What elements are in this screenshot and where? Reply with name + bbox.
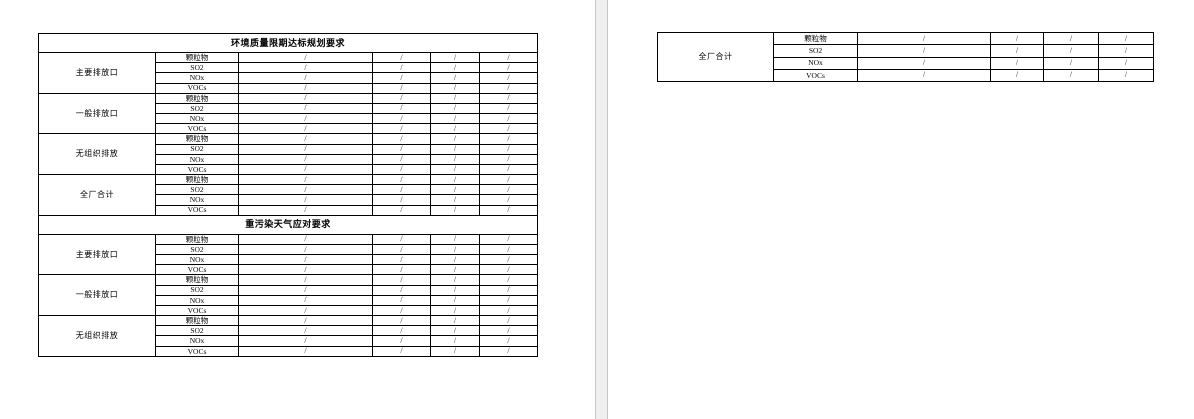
pollutant-label: NOx xyxy=(156,114,239,124)
pollutant-label: VOCs xyxy=(156,205,239,215)
value-cell: / xyxy=(480,83,538,93)
value-cell: / xyxy=(239,295,373,305)
table-row: 全厂合计颗粒物//// xyxy=(658,33,1154,45)
value-cell: / xyxy=(1099,45,1154,57)
group-label: 主要排放口 xyxy=(39,53,156,94)
pollutant-label: VOCs xyxy=(156,346,239,356)
pollutant-label: 颗粒物 xyxy=(156,134,239,144)
value-cell: / xyxy=(431,134,480,144)
value-cell: / xyxy=(991,69,1044,81)
value-cell: / xyxy=(239,185,373,195)
value-cell: / xyxy=(991,33,1044,45)
value-cell: / xyxy=(480,93,538,103)
value-cell: / xyxy=(373,336,431,346)
pollutant-label: VOCs xyxy=(156,124,239,134)
value-cell: / xyxy=(480,275,538,285)
page-2: 全厂合计颗粒物////SO2////NOx////VOCs//// xyxy=(608,0,1194,419)
value-cell: / xyxy=(431,305,480,315)
page-1: 环境质量限期达标规划要求主要排放口颗粒物////SO2////NOx////VO… xyxy=(0,0,595,419)
value-cell: / xyxy=(373,164,431,174)
pollutant-label: NOx xyxy=(156,336,239,346)
value-cell: / xyxy=(239,114,373,124)
value-cell: / xyxy=(431,234,480,244)
page-divider xyxy=(595,0,608,419)
value-cell: / xyxy=(373,175,431,185)
value-cell: / xyxy=(239,53,373,63)
value-cell: / xyxy=(373,346,431,356)
group-label: 全厂合计 xyxy=(39,175,156,216)
value-cell: / xyxy=(373,195,431,205)
table-row: 主要排放口颗粒物//// xyxy=(39,234,538,244)
value-cell: / xyxy=(480,175,538,185)
value-cell: / xyxy=(1099,33,1154,45)
value-cell: / xyxy=(858,33,991,45)
value-cell: / xyxy=(480,195,538,205)
value-cell: / xyxy=(480,346,538,356)
value-cell: / xyxy=(431,195,480,205)
value-cell: / xyxy=(431,175,480,185)
value-cell: / xyxy=(431,103,480,113)
value-cell: / xyxy=(480,255,538,265)
value-cell: / xyxy=(431,144,480,154)
value-cell: / xyxy=(239,285,373,295)
value-cell: / xyxy=(1044,57,1099,69)
group-label: 一般排放口 xyxy=(39,275,156,316)
value-cell: / xyxy=(373,305,431,315)
value-cell: / xyxy=(373,53,431,63)
value-cell: / xyxy=(431,63,480,73)
value-cell: / xyxy=(431,93,480,103)
value-cell: / xyxy=(431,255,480,265)
value-cell: / xyxy=(480,114,538,124)
value-cell: / xyxy=(431,275,480,285)
table-row: 无组织排放颗粒物//// xyxy=(39,316,538,326)
value-cell: / xyxy=(373,265,431,275)
pollutant-label: 颗粒物 xyxy=(156,234,239,244)
value-cell: / xyxy=(239,305,373,315)
value-cell: / xyxy=(480,305,538,315)
pollutant-label: VOCs xyxy=(156,164,239,174)
pollutant-label: 颗粒物 xyxy=(156,53,239,63)
pollutant-label: NOx xyxy=(156,154,239,164)
pollutant-label: NOx xyxy=(156,195,239,205)
value-cell: / xyxy=(431,164,480,174)
value-cell: / xyxy=(431,124,480,134)
value-cell: / xyxy=(373,234,431,244)
value-cell: / xyxy=(239,336,373,346)
table-row: 一般排放口颗粒物//// xyxy=(39,93,538,103)
value-cell: / xyxy=(480,164,538,174)
value-cell: / xyxy=(480,103,538,113)
section-title: 重污染天气应对要求 xyxy=(39,215,538,234)
value-cell: / xyxy=(480,154,538,164)
value-cell: / xyxy=(431,154,480,164)
pollutant-label: SO2 xyxy=(774,45,858,57)
pollutant-label: VOCs xyxy=(156,265,239,275)
value-cell: / xyxy=(373,103,431,113)
value-cell: / xyxy=(239,265,373,275)
value-cell: / xyxy=(1099,57,1154,69)
pollutant-label: 颗粒物 xyxy=(774,33,858,45)
pollutant-label: SO2 xyxy=(156,144,239,154)
value-cell: / xyxy=(480,234,538,244)
value-cell: / xyxy=(239,326,373,336)
group-label: 主要排放口 xyxy=(39,234,156,275)
value-cell: / xyxy=(1044,69,1099,81)
value-cell: / xyxy=(480,326,538,336)
value-cell: / xyxy=(373,244,431,254)
table-row: 全厂合计颗粒物//// xyxy=(39,175,538,185)
value-cell: / xyxy=(373,73,431,83)
value-cell: / xyxy=(373,285,431,295)
value-cell: / xyxy=(239,244,373,254)
page1-table: 环境质量限期达标规划要求主要排放口颗粒物////SO2////NOx////VO… xyxy=(38,33,538,357)
value-cell: / xyxy=(480,144,538,154)
table-row: 主要排放口颗粒物//// xyxy=(39,53,538,63)
value-cell: / xyxy=(480,285,538,295)
pollutant-label: SO2 xyxy=(156,103,239,113)
value-cell: / xyxy=(431,326,480,336)
value-cell: / xyxy=(480,124,538,134)
value-cell: / xyxy=(1099,69,1154,81)
page2-table: 全厂合计颗粒物////SO2////NOx////VOCs//// xyxy=(657,32,1154,82)
value-cell: / xyxy=(431,285,480,295)
value-cell: / xyxy=(239,316,373,326)
value-cell: / xyxy=(373,154,431,164)
pollutant-label: 颗粒物 xyxy=(156,93,239,103)
value-cell: / xyxy=(431,316,480,326)
value-cell: / xyxy=(858,69,991,81)
value-cell: / xyxy=(373,124,431,134)
value-cell: / xyxy=(373,326,431,336)
value-cell: / xyxy=(373,144,431,154)
value-cell: / xyxy=(239,175,373,185)
value-cell: / xyxy=(480,244,538,254)
value-cell: / xyxy=(239,205,373,215)
pollutant-label: VOCs xyxy=(156,83,239,93)
value-cell: / xyxy=(373,255,431,265)
value-cell: / xyxy=(373,185,431,195)
value-cell: / xyxy=(373,114,431,124)
section-title: 环境质量限期达标规划要求 xyxy=(39,34,538,53)
pollutant-label: VOCs xyxy=(156,305,239,315)
value-cell: / xyxy=(239,255,373,265)
value-cell: / xyxy=(1044,45,1099,57)
value-cell: / xyxy=(431,185,480,195)
pollutant-label: NOx xyxy=(156,295,239,305)
pollutant-label: 颗粒物 xyxy=(156,175,239,185)
value-cell: / xyxy=(480,73,538,83)
group-label: 无组织排放 xyxy=(39,316,156,357)
value-cell: / xyxy=(480,316,538,326)
pollutant-label: 颗粒物 xyxy=(156,275,239,285)
value-cell: / xyxy=(431,244,480,254)
table-row: 一般排放口颗粒物//// xyxy=(39,275,538,285)
value-cell: / xyxy=(1044,33,1099,45)
value-cell: / xyxy=(480,295,538,305)
pollutant-label: NOx xyxy=(774,57,858,69)
value-cell: / xyxy=(239,234,373,244)
value-cell: / xyxy=(239,195,373,205)
value-cell: / xyxy=(373,93,431,103)
value-cell: / xyxy=(991,45,1044,57)
pollutant-label: SO2 xyxy=(156,326,239,336)
value-cell: / xyxy=(373,275,431,285)
value-cell: / xyxy=(431,73,480,83)
value-cell: / xyxy=(431,336,480,346)
pollutant-label: 颗粒物 xyxy=(156,316,239,326)
pollutant-label: SO2 xyxy=(156,244,239,254)
value-cell: / xyxy=(480,53,538,63)
value-cell: / xyxy=(239,154,373,164)
value-cell: / xyxy=(239,346,373,356)
value-cell: / xyxy=(431,265,480,275)
value-cell: / xyxy=(480,265,538,275)
value-cell: / xyxy=(431,114,480,124)
value-cell: / xyxy=(239,164,373,174)
value-cell: / xyxy=(239,144,373,154)
value-cell: / xyxy=(991,57,1044,69)
pollutant-label: SO2 xyxy=(156,63,239,73)
value-cell: / xyxy=(239,103,373,113)
pollutant-label: VOCs xyxy=(774,69,858,81)
value-cell: / xyxy=(239,134,373,144)
value-cell: / xyxy=(431,346,480,356)
value-cell: / xyxy=(239,83,373,93)
value-cell: / xyxy=(480,63,538,73)
table-row: 无组织排放颗粒物//// xyxy=(39,134,538,144)
group-label: 无组织排放 xyxy=(39,134,156,175)
pollutant-label: NOx xyxy=(156,73,239,83)
value-cell: / xyxy=(431,205,480,215)
value-cell: / xyxy=(480,185,538,195)
value-cell: / xyxy=(858,45,991,57)
value-cell: / xyxy=(239,124,373,134)
document-canvas: 环境质量限期达标规划要求主要排放口颗粒物////SO2////NOx////VO… xyxy=(0,0,1194,419)
group-label: 一般排放口 xyxy=(39,93,156,134)
value-cell: / xyxy=(431,83,480,93)
value-cell: / xyxy=(373,316,431,326)
value-cell: / xyxy=(373,205,431,215)
value-cell: / xyxy=(239,73,373,83)
pollutant-label: NOx xyxy=(156,255,239,265)
value-cell: / xyxy=(480,336,538,346)
value-cell: / xyxy=(239,63,373,73)
value-cell: / xyxy=(239,275,373,285)
pollutant-label: SO2 xyxy=(156,185,239,195)
value-cell: / xyxy=(480,134,538,144)
value-cell: / xyxy=(373,134,431,144)
value-cell: / xyxy=(431,295,480,305)
value-cell: / xyxy=(373,83,431,93)
pollutant-label: SO2 xyxy=(156,285,239,295)
value-cell: / xyxy=(431,53,480,63)
value-cell: / xyxy=(373,295,431,305)
value-cell: / xyxy=(373,63,431,73)
value-cell: / xyxy=(858,57,991,69)
value-cell: / xyxy=(480,205,538,215)
group-label: 全厂合计 xyxy=(658,33,774,82)
value-cell: / xyxy=(239,93,373,103)
